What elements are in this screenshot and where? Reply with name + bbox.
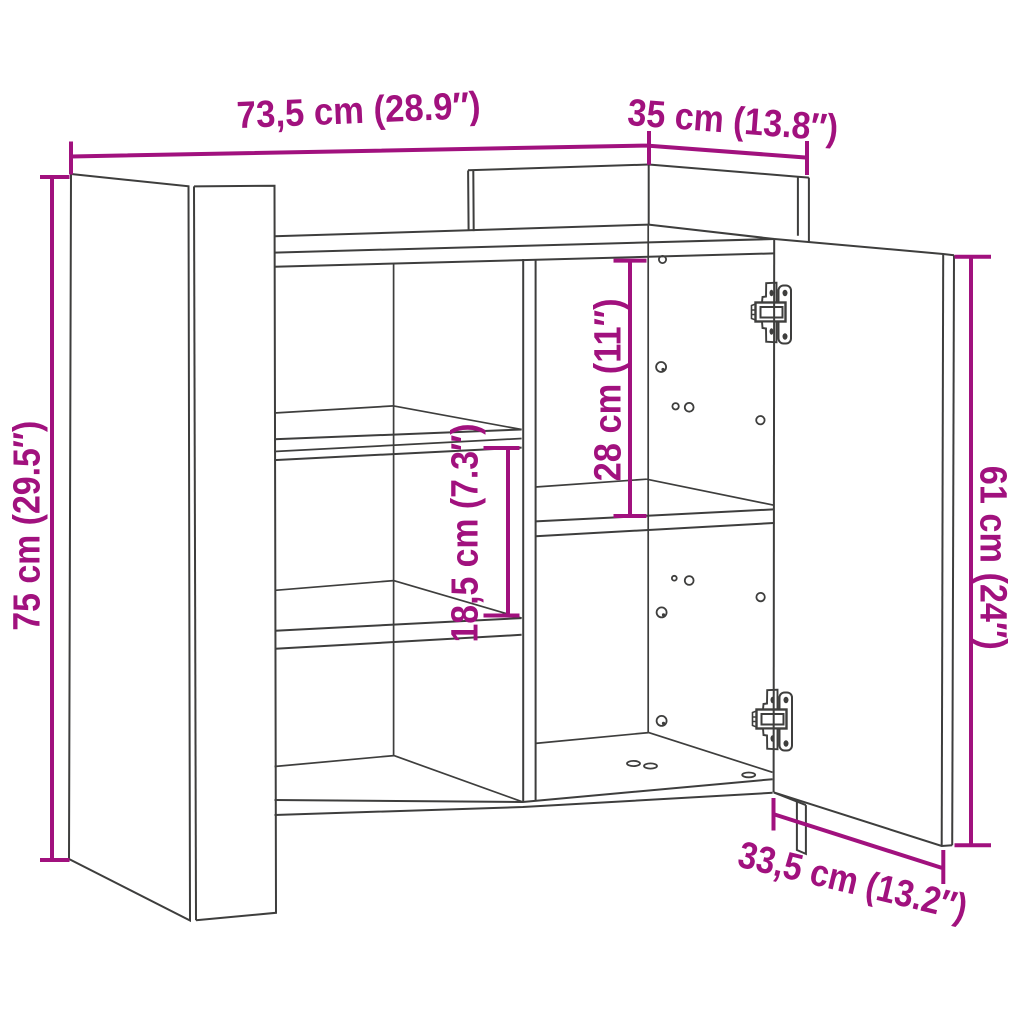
svg-text:75 cm (29.5″): 75 cm (29.5″): [7, 421, 49, 631]
svg-text:18,5 cm (7.3″): 18,5 cm (7.3″): [445, 424, 487, 643]
svg-text:61 cm (24″): 61 cm (24″): [971, 466, 1013, 650]
svg-text:28 cm (11″): 28 cm (11″): [588, 298, 630, 481]
